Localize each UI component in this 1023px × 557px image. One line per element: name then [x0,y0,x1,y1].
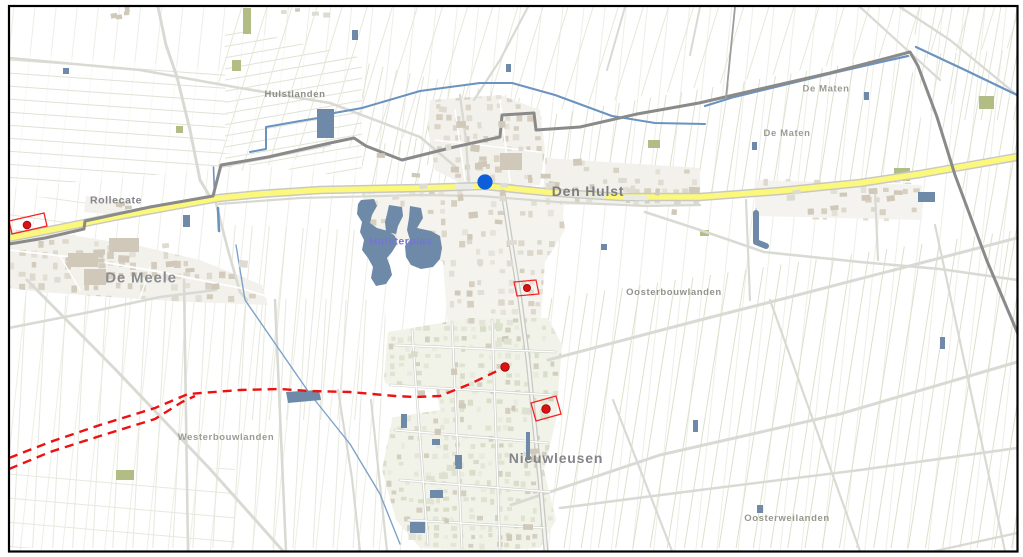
svg-text:Hulsterplas: Hulsterplas [370,236,433,248]
svg-text:Nieuwleusen: Nieuwleusen [509,450,603,466]
svg-text:Den Hulst: Den Hulst [552,183,625,199]
svg-text:De Maten: De Maten [763,128,810,139]
svg-text:De Meele: De Meele [105,270,176,287]
svg-text:Oosterbouwlanden: Oosterbouwlanden [626,287,722,298]
svg-text:Rollecate: Rollecate [90,195,142,207]
svg-text:Westerbouwlanden: Westerbouwlanden [178,432,275,443]
svg-text:Oosterweilanden: Oosterweilanden [744,513,830,524]
svg-text:De Maten: De Maten [802,84,849,95]
svg-text:Hulstlanden: Hulstlanden [265,89,326,100]
